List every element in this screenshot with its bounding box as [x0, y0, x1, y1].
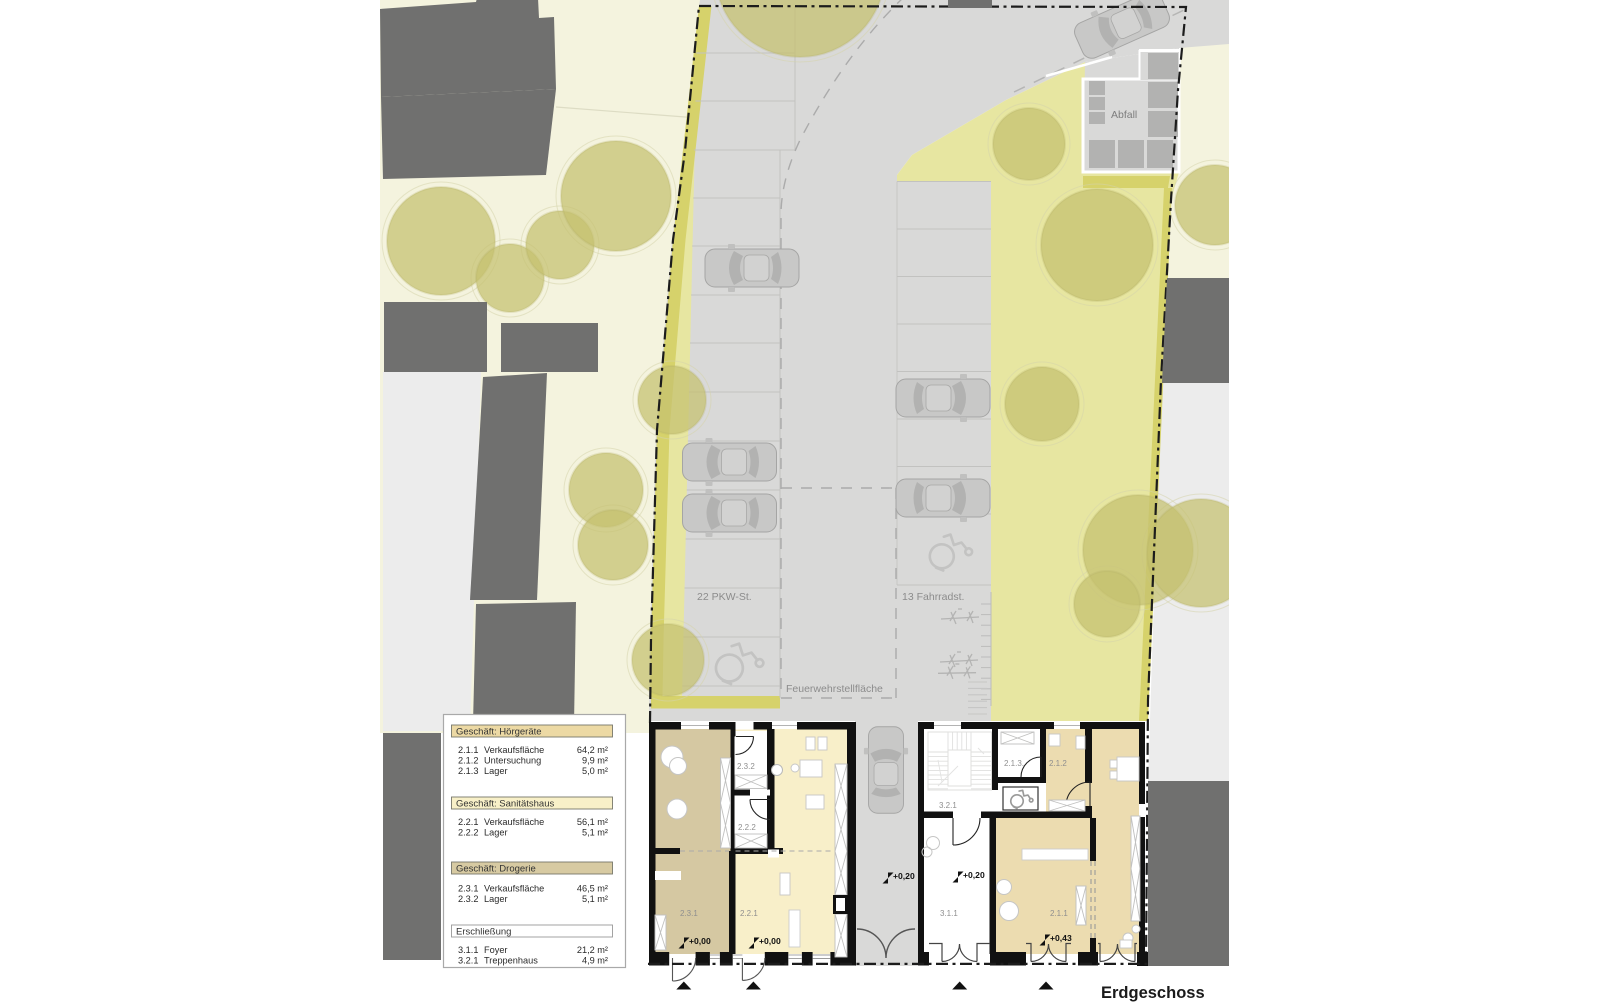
- svg-text:Erschließung: Erschließung: [456, 927, 511, 938]
- svg-text:Verkaufsfläche: Verkaufsfläche: [484, 745, 544, 755]
- svg-text:5,1 m²: 5,1 m²: [582, 828, 608, 838]
- svg-text:2.2.2: 2.2.2: [458, 828, 478, 838]
- svg-text:2.3.1: 2.3.1: [458, 884, 478, 894]
- svg-text:2.3.1: 2.3.1: [680, 909, 698, 918]
- svg-text:5,0 m²: 5,0 m²: [582, 766, 608, 776]
- svg-text:5,1 m²: 5,1 m²: [582, 894, 608, 904]
- svg-text:22 PKW-St.: 22 PKW-St.: [697, 591, 752, 603]
- svg-text:46,5 m²: 46,5 m²: [577, 884, 608, 894]
- svg-text:Abfall: Abfall: [1111, 109, 1137, 121]
- svg-text:Lager: Lager: [484, 894, 508, 904]
- svg-text:Geschäft: Drogerie: Geschäft: Drogerie: [456, 864, 536, 875]
- svg-text:+0,20: +0,20: [963, 870, 985, 880]
- svg-text:Verkaufsfläche: Verkaufsfläche: [484, 817, 544, 827]
- svg-text:+0,20: +0,20: [893, 871, 915, 881]
- svg-text:2.1.1: 2.1.1: [458, 745, 478, 755]
- svg-text:2.2.1: 2.2.1: [458, 817, 478, 827]
- svg-text:9,9 m²: 9,9 m²: [582, 756, 608, 766]
- svg-text:56,1 m²: 56,1 m²: [577, 817, 608, 827]
- svg-text:3.2.1: 3.2.1: [939, 801, 957, 810]
- svg-text:13 Fahrradst.: 13 Fahrradst.: [902, 591, 964, 603]
- svg-text:Treppenhaus: Treppenhaus: [484, 956, 538, 966]
- svg-text:+0,00: +0,00: [759, 936, 781, 946]
- svg-text:2.1.3.: 2.1.3.: [1004, 759, 1024, 768]
- svg-text:Foyer: Foyer: [484, 945, 508, 955]
- svg-text:2.3.2: 2.3.2: [458, 894, 478, 904]
- svg-text:2.1.1: 2.1.1: [1050, 909, 1068, 918]
- svg-text:Feuerwehrstellfläche: Feuerwehrstellfläche: [786, 683, 883, 695]
- svg-text:Lager: Lager: [484, 828, 508, 838]
- svg-text:3.2.1: 3.2.1: [458, 956, 478, 966]
- svg-text:Erdgeschoss: Erdgeschoss: [1101, 984, 1205, 1002]
- svg-text:+0,00: +0,00: [689, 936, 711, 946]
- svg-text:2.1.2: 2.1.2: [1049, 759, 1067, 768]
- svg-text:64,2 m²: 64,2 m²: [577, 745, 608, 755]
- svg-text:2.3.2: 2.3.2: [737, 762, 755, 771]
- svg-text:2.1.2: 2.1.2: [458, 756, 478, 766]
- svg-text:4,9 m²: 4,9 m²: [582, 956, 608, 966]
- svg-text:Verkaufsfläche: Verkaufsfläche: [484, 884, 544, 894]
- svg-text:+0,43: +0,43: [1050, 933, 1072, 943]
- svg-text:Lager: Lager: [484, 766, 508, 776]
- svg-text:Geschäft: Hörgeräte: Geschäft: Hörgeräte: [456, 727, 542, 738]
- svg-text:2.2.2: 2.2.2: [738, 823, 756, 832]
- svg-text:3.1.1: 3.1.1: [458, 945, 478, 955]
- svg-text:2.2.1: 2.2.1: [740, 909, 758, 918]
- svg-text:Untersuchung: Untersuchung: [484, 756, 541, 766]
- svg-text:Geschäft: Sanitätshaus: Geschäft: Sanitätshaus: [456, 799, 554, 810]
- svg-text:3.1.1: 3.1.1: [940, 909, 958, 918]
- svg-text:2.1.3: 2.1.3: [458, 766, 478, 776]
- svg-text:21,2 m²: 21,2 m²: [577, 945, 608, 955]
